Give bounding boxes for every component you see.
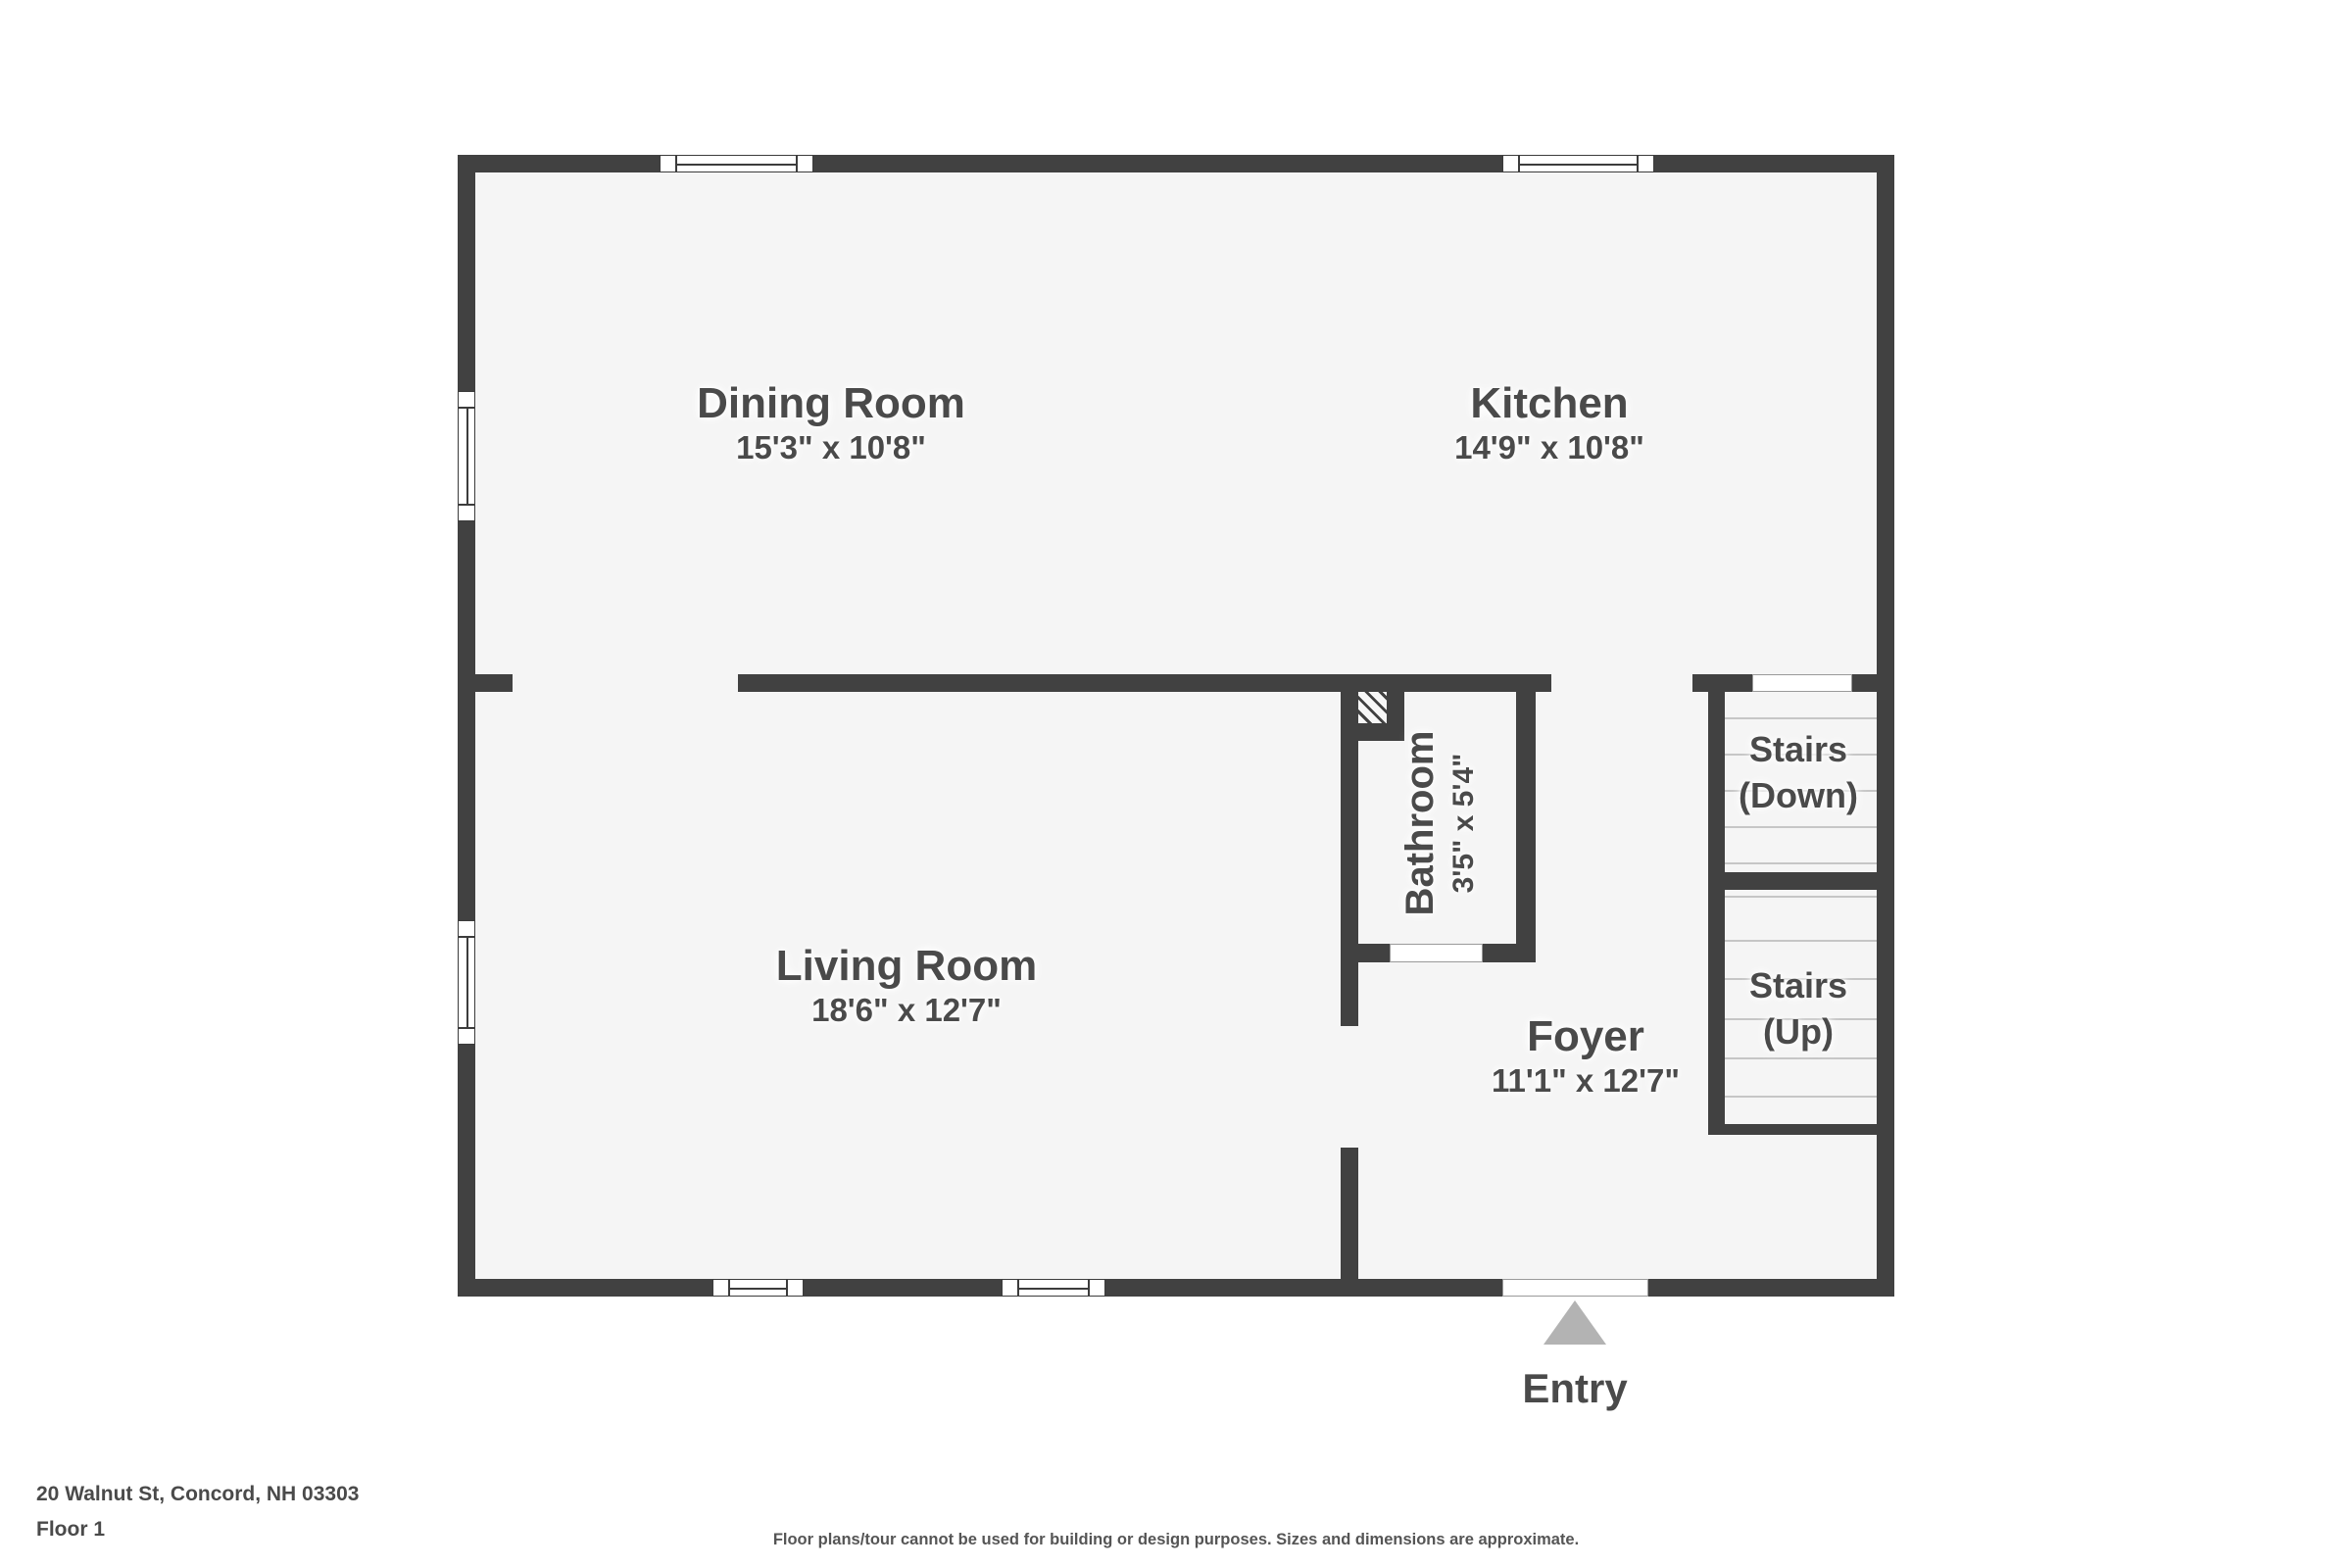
room-label-dining: Dining Room 15'3" x 10'8" (697, 379, 965, 467)
window-mullion (466, 408, 468, 505)
wall-bathroom-right (1516, 674, 1536, 962)
wall-stairwell-left (1708, 692, 1725, 1134)
floor-area (475, 172, 1877, 1279)
room-dimensions: 15'3" x 10'8" (697, 428, 965, 467)
window (458, 920, 475, 1045)
room-name: Bathroom (1396, 731, 1445, 916)
room-name: Foyer (1492, 1012, 1680, 1061)
stair-tread (1725, 940, 1877, 942)
room-name: Dining Room (697, 379, 965, 428)
bathroom-door-opening (1390, 944, 1483, 962)
room-dimensions: 11'1" x 12'7" (1492, 1061, 1680, 1101)
stair-tread (1725, 896, 1877, 898)
room-dimensions: 3'5" x 5'4" (1445, 731, 1484, 916)
wall-stairs-top-right (1852, 674, 1877, 692)
room-dimensions: 18'6" x 12'7" (776, 991, 1037, 1030)
stairs-line1: Stairs (1749, 962, 1847, 1008)
window-mullion (466, 937, 468, 1028)
wall-right (1877, 155, 1894, 1297)
stair-tread (1725, 826, 1877, 828)
stairs-line2: (Up) (1749, 1008, 1847, 1054)
room-dimensions: 14'9" x 10'8" (1454, 428, 1644, 467)
room-label-foyer: Foyer 11'1" x 12'7" (1492, 1012, 1680, 1101)
room-label-bathroom: Bathroom 3'5" x 5'4" (1396, 731, 1484, 916)
stair-tread (1725, 717, 1877, 719)
property-address: 20 Walnut St, Concord, NH 03303 (36, 1483, 359, 1506)
wall-stairs-landing (1708, 872, 1877, 890)
stair-tread (1725, 862, 1877, 864)
stairs-opening (1752, 674, 1852, 692)
window-mullion (1519, 164, 1638, 166)
wall-foyer-divider-lower (1341, 1148, 1358, 1285)
room-name: Kitchen (1454, 379, 1644, 428)
entry-door-opening (1502, 1279, 1648, 1297)
window (1002, 1279, 1105, 1297)
wall-stairs-up-bottom (1708, 1124, 1877, 1135)
room-label-kitchen: Kitchen 14'9" x 10'8" (1454, 379, 1644, 467)
entry-arrow-icon (1543, 1300, 1606, 1345)
stairs-down-label: Stairs (Down) (1739, 726, 1858, 818)
wall-left (458, 155, 475, 1297)
wall-divider-main (738, 674, 1551, 692)
stairs-up-label: Stairs (Up) (1749, 962, 1847, 1054)
window (458, 391, 475, 521)
disclaimer-text: Floor plans/tour cannot be used for buil… (0, 1531, 2352, 1549)
room-name: Living Room (776, 942, 1037, 991)
window (660, 155, 813, 172)
stair-tread (1725, 1057, 1877, 1059)
window-mullion (729, 1288, 787, 1290)
stair-tread (1725, 1096, 1877, 1098)
window (1502, 155, 1654, 172)
wall-divider-stub (458, 674, 513, 692)
wall-stairs-top-left (1692, 674, 1752, 692)
chimney-hatch-icon (1358, 692, 1387, 723)
room-label-living: Living Room 18'6" x 12'7" (776, 942, 1037, 1030)
wall-bottom (458, 1279, 1894, 1297)
entry-label: Entry (1522, 1365, 1627, 1412)
floor-plan-page: Dining Room 15'3" x 10'8" Kitchen 14'9" … (0, 0, 2352, 1568)
stairs-line2: (Down) (1739, 772, 1858, 818)
floor-plan: Dining Room 15'3" x 10'8" Kitchen 14'9" … (458, 155, 1894, 1297)
window-mullion (676, 164, 797, 166)
stairs-line1: Stairs (1739, 726, 1858, 772)
window (712, 1279, 804, 1297)
window-mullion (1018, 1288, 1089, 1290)
